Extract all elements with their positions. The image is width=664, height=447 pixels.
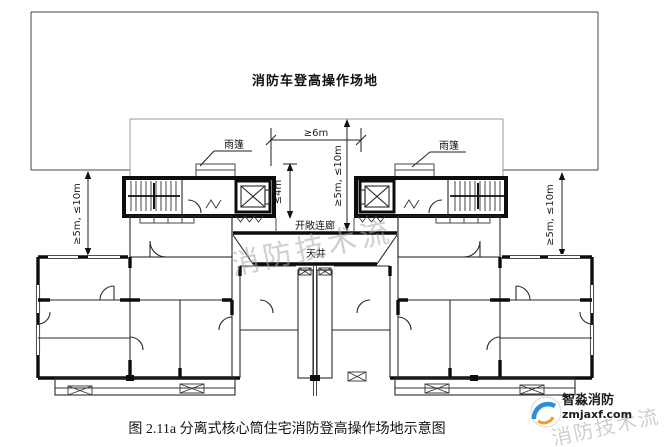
dim-6m: ≥6m [266, 128, 366, 166]
dim-4m: ≤4m [273, 163, 297, 219]
figure-caption: 图 2.11a 分离式核心筒住宅消防登高操作场地示意图 [128, 420, 445, 437]
dim-5-10m-center: ≥5m, ≤10m [333, 119, 350, 231]
canopy-right-label: 雨篷 [439, 139, 459, 152]
canopy-left: 雨篷 [196, 138, 252, 177]
brand-name: 智淼消防 [562, 392, 614, 407]
site-label: 消防车登高操作场地 [252, 73, 378, 88]
dim-5-10m-right: ≥5m, ≤10m [545, 172, 565, 257]
elevator-right-icon [360, 181, 394, 212]
operation-site-boundary: 消防车登高操作场地 [31, 12, 598, 177]
brand-url: zmjaxf.com [562, 408, 632, 421]
figure-page: 消防车登高操作场地 ≥6m ≥5m, ≤10m ≥5m, ≤10m ≥5m, ≤… [0, 0, 664, 447]
elevator-left-icon [236, 181, 270, 212]
left-wing [35, 216, 240, 378]
balconies [55, 372, 575, 395]
dim-5-10m-right-label: ≥5m, ≤10m [545, 184, 556, 246]
canopy-left-label: 雨篷 [224, 138, 244, 151]
right-wing [390, 216, 595, 378]
dim-5-10m-center-label: ≥5m, ≤10m [333, 145, 344, 207]
fire-access-site-diagram: 消防车登高操作场地 ≥6m ≥5m, ≤10m ≥5m, ≤10m ≥5m, ≤… [0, 0, 664, 447]
dim-5-10m-left: ≥5m, ≤10m [72, 171, 91, 256]
dim-5-10m-left-label: ≥5m, ≤10m [72, 183, 83, 245]
canopy-right: 雨篷 [395, 139, 466, 177]
dim-6m-label: ≥6m [304, 128, 328, 139]
